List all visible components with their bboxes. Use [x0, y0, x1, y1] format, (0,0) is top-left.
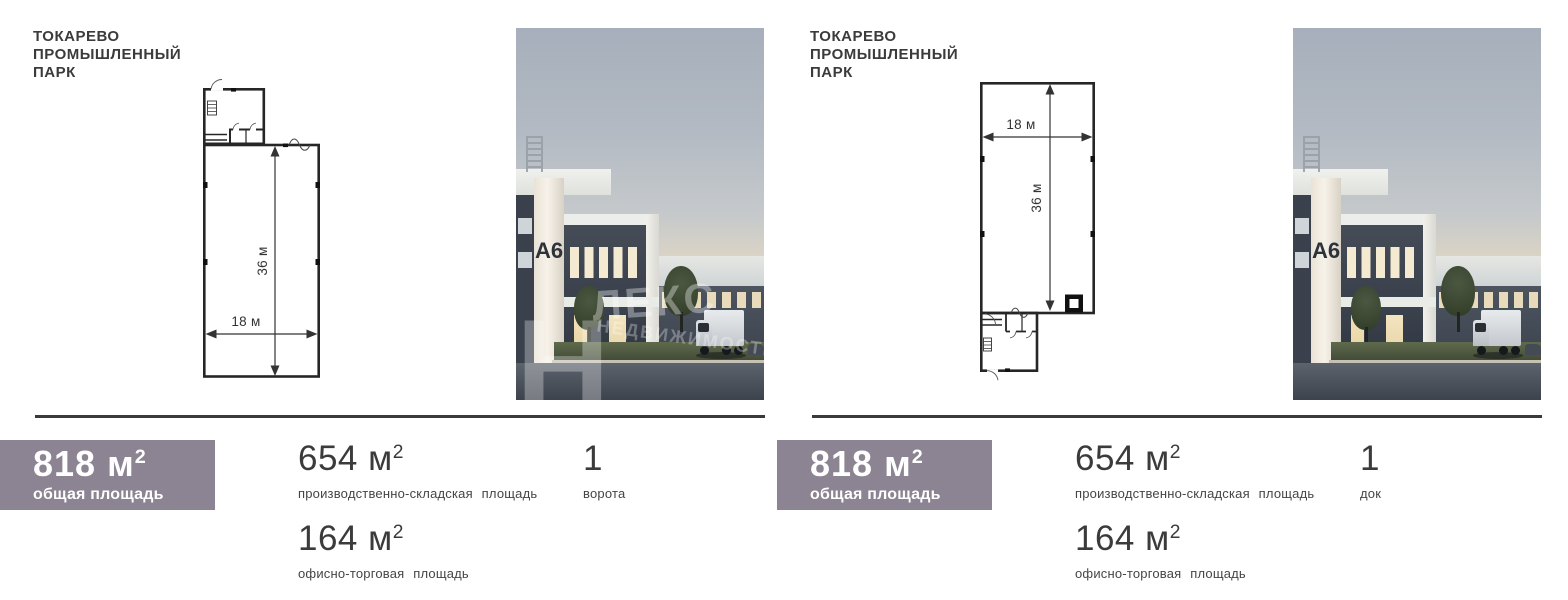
total-area-number: 818 м — [810, 443, 912, 484]
warehouse-area-sup: 2 — [393, 442, 404, 463]
office-area-value: 164 м2 — [1075, 521, 1246, 556]
office-area-stat: 164 м2 офисно-торговая площадь — [1075, 521, 1246, 581]
warehouse-area-sup: 2 — [1170, 442, 1181, 463]
title-line-3: ПАРК — [810, 64, 958, 82]
gates-stat: 1 ворота — [583, 441, 625, 501]
gates-count-value: 1 — [583, 441, 625, 476]
dimension-width-label: 18 м — [1006, 117, 1035, 132]
photo-roof-ladder — [1303, 136, 1320, 172]
dimension-height-label: 36 м — [255, 246, 270, 275]
title-line-2: ПРОМЫШЛЕННЫЙ — [33, 46, 181, 64]
brochure-canvas: ТОКАРЕВО ПРОМЫШЛЕННЫЙ ПАРК — [0, 0, 1568, 600]
title-line-3: ПАРК — [33, 64, 181, 82]
tree — [1441, 266, 1475, 332]
photo-window-row — [570, 247, 642, 278]
truck — [696, 308, 746, 362]
photo-road — [516, 363, 764, 400]
warehouse-area-value: 654 м2 — [1075, 441, 1314, 476]
dock-stat: 1 док — [1360, 441, 1381, 501]
total-area-label: общая площадь — [810, 486, 992, 504]
photo-road — [1293, 363, 1541, 400]
total-area-badge: 818 м2 общая площадь — [0, 440, 215, 510]
photo-window-row — [1347, 247, 1419, 278]
photo-frame-top — [1341, 214, 1436, 225]
dimension-width-label: 18 м — [231, 314, 260, 329]
building-photo: A6 Н ЛЕКС — [516, 28, 764, 400]
warehouse-area-label: производственно-складская площадь — [1075, 486, 1314, 501]
panel-left: ТОКАРЕВО ПРОМЫШЛЕННЫЙ ПАРК — [0, 0, 784, 600]
tree — [574, 286, 604, 344]
building-label: A6 — [534, 238, 564, 264]
floor-plan-a: 36 м 18 м — [203, 88, 320, 378]
total-area-sup: 2 — [135, 446, 147, 468]
photo-frame-top — [564, 214, 659, 225]
warehouse-area-number: 654 м — [298, 439, 393, 478]
office-area-label: офисно-торговая площадь — [298, 566, 469, 581]
photo-left-windows — [1295, 218, 1309, 280]
title-line-2: ПРОМЫШЛЕННЫЙ — [810, 46, 958, 64]
total-area-label: общая площадь — [33, 486, 215, 504]
title-line-1: ТОКАРЕВО — [33, 28, 181, 46]
building-label: A6 — [1311, 238, 1341, 264]
office-area-sup: 2 — [393, 522, 404, 543]
total-area-badge: 818 м2 общая площадь — [777, 440, 992, 510]
total-area-value: 818 м2 — [33, 446, 215, 482]
office-area-number: 164 м — [1075, 519, 1170, 558]
car — [748, 344, 764, 355]
warehouse-area-stat: 654 м2 производственно-складская площадь — [298, 441, 537, 501]
divider-line — [812, 415, 1542, 418]
office-area-number: 164 м — [298, 519, 393, 558]
warehouse-area-number: 654 м — [1075, 439, 1170, 478]
title-line-1: ТОКАРЕВО — [810, 28, 958, 46]
tree — [664, 266, 698, 332]
dock-count-label: док — [1360, 486, 1381, 501]
photo-roof-ladder — [526, 136, 543, 172]
photo-left-windows — [518, 218, 532, 280]
office-area-label: офисно-торговая площадь — [1075, 566, 1246, 581]
building-photo: A6 — [1293, 28, 1541, 400]
panel-right: ТОКАРЕВО ПРОМЫШЛЕННЫЙ ПАРК — [784, 0, 1568, 600]
warehouse-area-value: 654 м2 — [298, 441, 537, 476]
divider-line — [35, 415, 765, 418]
floor-plan-b: 18 м 36 м — [980, 82, 1095, 372]
park-title: ТОКАРЕВО ПРОМЫШЛЕННЫЙ ПАРК — [810, 28, 958, 82]
office-area-value: 164 м2 — [298, 521, 469, 556]
park-title: ТОКАРЕВО ПРОМЫШЛЕННЫЙ ПАРК — [33, 28, 181, 82]
dock-count-value: 1 — [1360, 441, 1381, 476]
tree — [1351, 286, 1381, 344]
truck — [1473, 308, 1523, 362]
dimension-height-label: 36 м — [1029, 183, 1044, 212]
gates-count-label: ворота — [583, 486, 625, 501]
total-area-number: 818 м — [33, 443, 135, 484]
car — [1525, 344, 1541, 355]
office-area-stat: 164 м2 офисно-торговая площадь — [298, 521, 469, 581]
warehouse-area-stat: 654 м2 производственно-складская площадь — [1075, 441, 1314, 501]
warehouse-area-label: производственно-складская площадь — [298, 486, 537, 501]
office-area-sup: 2 — [1170, 522, 1181, 543]
total-area-sup: 2 — [912, 446, 924, 468]
total-area-value: 818 м2 — [810, 446, 992, 482]
